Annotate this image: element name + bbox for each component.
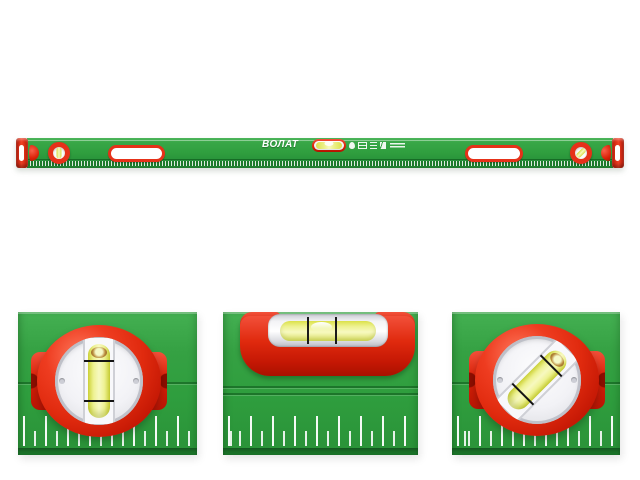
- cap-bumper-right: [601, 145, 611, 161]
- body-bottom-edge: [18, 448, 197, 455]
- level-mark-line: [84, 400, 114, 402]
- end-cap-slot: [615, 145, 620, 161]
- screw-dot: [133, 378, 139, 384]
- vial-carrier: [55, 337, 143, 425]
- vial-tube: [88, 344, 110, 418]
- screw-dot: [571, 377, 577, 383]
- round-vial-left: [48, 142, 70, 164]
- vial-tube: [575, 147, 586, 158]
- hand-pictogram-icon: [349, 142, 355, 149]
- lines-pictogram-icon: [370, 142, 377, 149]
- level-spec-pictogram-icon: [358, 142, 367, 149]
- fine-print-lines: [390, 143, 405, 149]
- round-vial-right: [570, 142, 592, 164]
- brand-logo: ВОЛАТ: [262, 140, 298, 150]
- body-bottom-edge: [223, 448, 418, 455]
- body-bottom-edge: [452, 448, 620, 455]
- closeup-vertical-vial: [18, 312, 197, 455]
- end-cap-slot: [19, 145, 24, 161]
- screw-dot: [497, 377, 503, 383]
- level-mark-line: [84, 360, 114, 362]
- closeup-angled-vial: [452, 312, 620, 455]
- closeup-horizontal-vial: [223, 312, 418, 455]
- ruler-ticks-short: [228, 431, 413, 446]
- end-cap-left: [16, 138, 28, 168]
- vial-window: [55, 337, 143, 425]
- handle-hole-right: [465, 145, 523, 162]
- product-photo-canvas: ВОЛАТ: [0, 0, 640, 480]
- horizontal-vial: [312, 139, 346, 152]
- vial-bubble: [325, 141, 334, 146]
- vial-housing: [37, 325, 161, 437]
- level-mark-line: [307, 317, 309, 344]
- body-groove-line: [223, 393, 418, 395]
- body-groove-line: [223, 386, 418, 388]
- vial-housing: [475, 324, 599, 436]
- screw-dot: [59, 378, 65, 384]
- vial-bubble: [91, 347, 107, 358]
- vial-carrier-rotated: [493, 336, 581, 424]
- level-top-view: ВОЛАТ: [16, 138, 624, 168]
- vial-bubble: [311, 322, 332, 332]
- vial-window: [493, 336, 581, 424]
- handle-hole-left: [108, 145, 165, 162]
- arrow-pictogram-icon: [380, 142, 386, 149]
- vial-tube: [57, 148, 62, 159]
- end-cap-right: [612, 138, 624, 168]
- level-mark-line: [335, 317, 337, 344]
